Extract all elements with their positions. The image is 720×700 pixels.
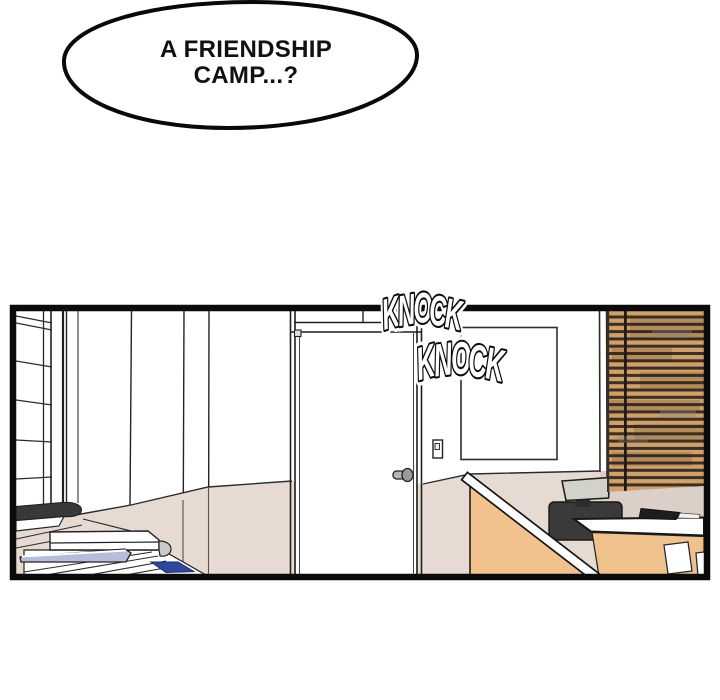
svg-text:A FRIENDSHIP: A FRIENDSHIP	[160, 36, 332, 63]
svg-text:CAMP...?: CAMP...?	[194, 62, 299, 89]
